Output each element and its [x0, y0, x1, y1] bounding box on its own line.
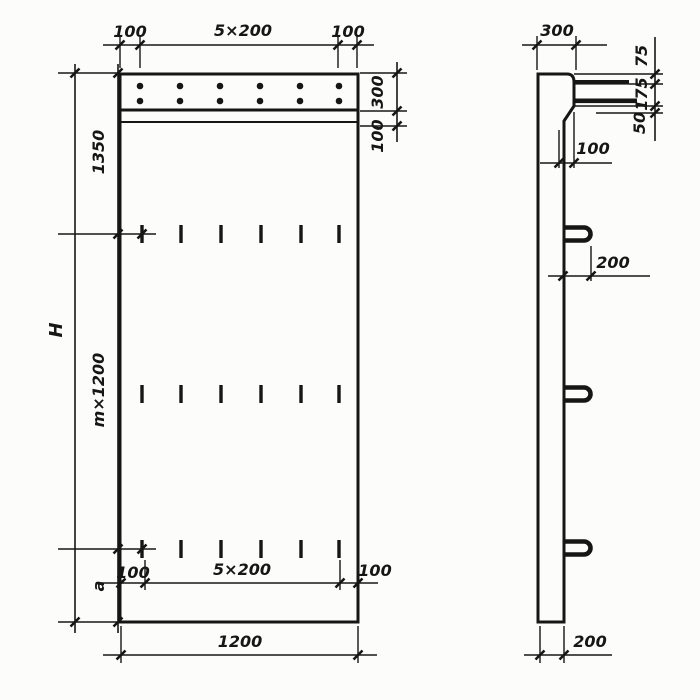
rebar-dots — [137, 83, 343, 105]
top-fin-upper — [574, 80, 629, 85]
lifting-hook-1 — [564, 228, 591, 241]
front-bottom-inner-dimension: 100 5×200 100 — [96, 560, 392, 590]
front-top-dimension: 100 5×200 100 — [103, 21, 374, 68]
front-bottom-overall-dimension: 1200 — [103, 626, 377, 663]
front-right-dimensions: 300 100 — [360, 62, 407, 153]
dim-label-front-top-center: 5×200 — [214, 21, 272, 40]
lifting-hook-2 — [564, 388, 591, 401]
side-step-dimension: 100 — [540, 112, 612, 168]
panel-outline — [120, 74, 358, 622]
dim-label-front-top-right: 100 — [331, 22, 364, 41]
drawing-sheet: 100 5×200 100 H 1350 m×1200 a 300 100 — [0, 0, 700, 700]
dim-label-hook-200: 200 — [596, 253, 629, 272]
dim-label-bottom-inner-center: 5×200 — [213, 560, 271, 579]
dim-label-width-1200: 1200 — [218, 632, 263, 651]
slot-row-3 — [142, 540, 339, 558]
dim-label-bottom-inner-left: 100 — [116, 563, 149, 582]
front-left-dimensions: H 1350 m×1200 a — [46, 64, 156, 633]
dim-label-band-300: 300 — [368, 75, 387, 108]
slot-row-2 — [142, 385, 339, 403]
dim-label-height-H: H — [46, 322, 67, 337]
slot-row-1 — [142, 225, 339, 243]
dim-label-side-top-300: 300 — [540, 21, 573, 40]
side-top-dimension: 300 — [522, 21, 607, 70]
dim-label-step-100: 100 — [576, 139, 609, 158]
dim-label-side-50: 50 — [630, 112, 649, 134]
lifting-hook-3 — [564, 542, 591, 555]
side-bottom-dimension: 200 — [524, 626, 612, 663]
dim-label-side-bottom-200: 200 — [573, 632, 606, 651]
dim-label-side-175: 175 — [632, 77, 651, 110]
dim-label-front-top-left: 100 — [113, 22, 146, 41]
dim-label-1350: 1350 — [89, 130, 108, 175]
front-view — [120, 74, 358, 622]
side-right-dimensions: 75 175 50 — [574, 37, 663, 141]
technical-drawing: 100 5×200 100 H 1350 m×1200 a 300 100 — [0, 0, 700, 700]
dim-label-ledge-100: 100 — [368, 119, 387, 152]
dim-label-side-75: 75 — [632, 45, 651, 67]
top-fin-lower — [574, 99, 637, 104]
dim-label-m-x-1200: m×1200 — [89, 353, 108, 428]
dim-label-bottom-inner-right: 100 — [358, 561, 391, 580]
